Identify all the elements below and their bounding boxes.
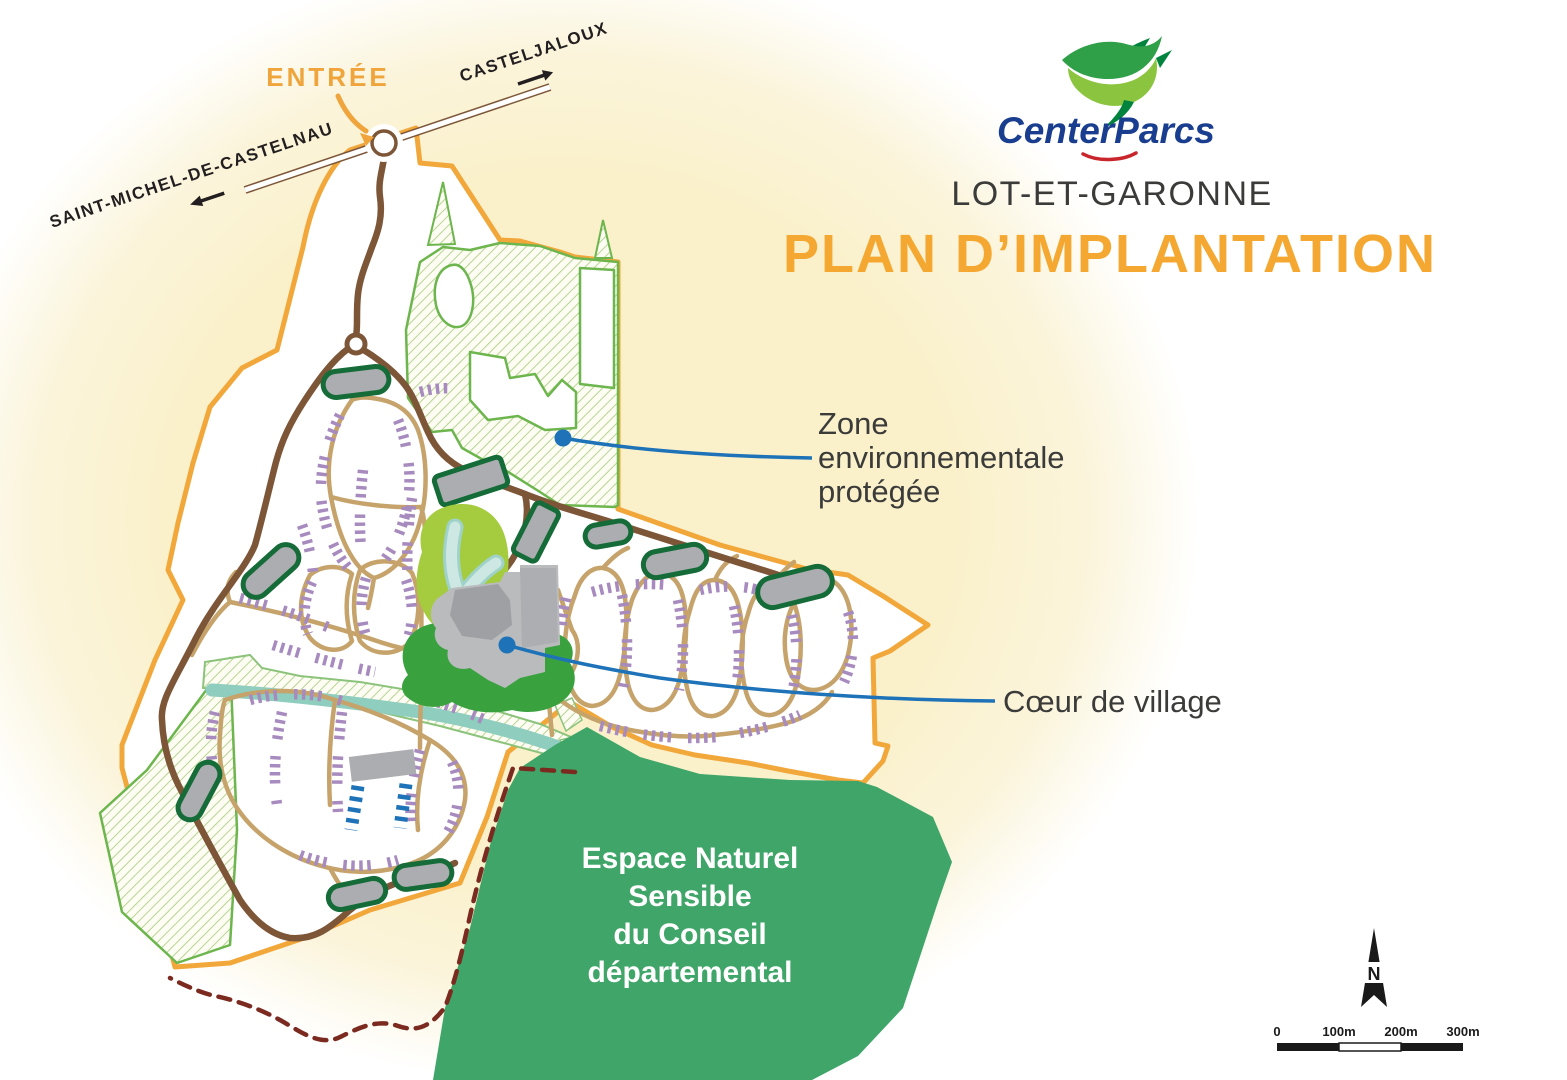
entrance-label: ENTRÉE: [266, 62, 389, 92]
brand-wordmark: CenterParcs: [997, 110, 1215, 151]
village-heart-label: Cœur de village: [1003, 684, 1222, 719]
plan-implantation-page: Zone environnementale protégée Cœur de v…: [0, 0, 1567, 1080]
ens-label-line1: Espace Naturel: [582, 842, 799, 875]
ens-label-line2: Sensible: [628, 880, 751, 913]
ens-label-line4: départemental: [587, 956, 792, 989]
scale-tick-100: 100m: [1322, 1024, 1355, 1039]
scale-tick-200: 200m: [1384, 1024, 1417, 1039]
protected-zone-marker-dot: [555, 430, 572, 447]
scale-tick-0: 0: [1273, 1024, 1280, 1039]
site-plan-map: Zone environnementale protégée Cœur de v…: [0, 0, 1567, 1080]
ens-label-line3: du Conseil: [613, 918, 766, 951]
scale-tick-300: 300m: [1446, 1024, 1479, 1039]
region-label: LOT-ET-GARONNE: [951, 175, 1272, 213]
protected-zone-label-line2: environnementale: [818, 440, 1064, 475]
north-label: N: [1368, 964, 1381, 984]
scale-bar: 0 100m 200m 300m: [1273, 1024, 1479, 1051]
roundabout: [372, 131, 396, 155]
page-title: PLAN D’IMPLANTATION: [783, 224, 1437, 284]
road-junction-node: [347, 335, 365, 353]
north-arrow: N: [1360, 928, 1388, 1007]
village-heart-marker-dot: [499, 637, 516, 654]
protected-zone-label-line3: protégée: [818, 474, 940, 509]
brand-swoosh: [1083, 153, 1136, 160]
protected-zone-label-line1: Zone: [818, 406, 889, 441]
